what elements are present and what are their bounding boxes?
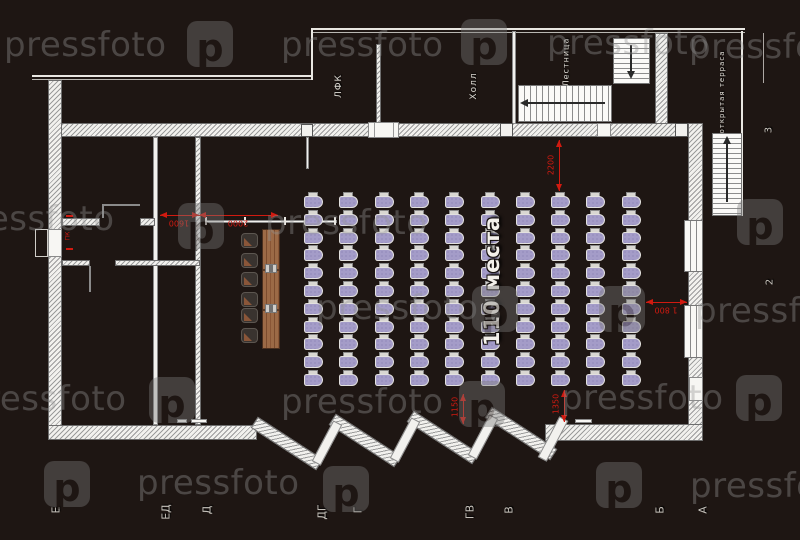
watermark-logo-glyph: p <box>53 469 80 507</box>
watermark-text: pressfoto <box>281 25 444 65</box>
watermark-layer: pressfotoppressfotoppressfotopressfotopr… <box>0 0 800 540</box>
watermark-logo-icon: p <box>459 381 505 427</box>
watermark-text: pressfoto <box>561 378 724 418</box>
watermark-logo-icon: p <box>736 375 782 421</box>
watermark-logo-glyph: p <box>481 294 508 332</box>
watermark-logo-glyph: p <box>332 474 359 512</box>
watermark-logo-glyph: p <box>745 383 772 421</box>
watermark-logo-glyph: p <box>158 385 185 423</box>
watermark-logo-glyph: p <box>746 207 773 245</box>
watermark-logo-glyph: p <box>187 211 214 249</box>
watermark-logo-icon: p <box>737 199 783 245</box>
watermark-text: pressfoto <box>0 199 115 239</box>
watermark-logo-icon: p <box>44 461 90 507</box>
watermark-logo-icon: p <box>461 19 507 65</box>
floor-plan: ЛФКХоллЛестницаоткрытая терраса110 места… <box>0 0 800 540</box>
watermark-logo-icon: p <box>149 377 195 423</box>
watermark-logo-glyph: p <box>468 389 495 427</box>
watermark-logo-icon: p <box>178 203 224 249</box>
watermark-text: pressfoto <box>690 466 800 506</box>
watermark-text: pressfoto <box>695 291 800 331</box>
watermark-text: pressfoto <box>281 382 444 422</box>
watermark-logo-icon: p <box>323 466 369 512</box>
watermark-text: pressfoto <box>0 379 127 419</box>
watermark-logo-glyph: p <box>608 294 635 332</box>
watermark-text: pressfoto <box>265 203 428 243</box>
watermark-logo-icon: p <box>599 286 645 332</box>
watermark-text: pressfoto <box>4 25 167 65</box>
watermark-logo-glyph: p <box>605 470 632 508</box>
watermark-text: pressfoto <box>547 23 710 63</box>
watermark-text: pressfoto <box>689 27 800 67</box>
watermark-logo-glyph: p <box>196 29 223 67</box>
watermark-text: pressfoto <box>316 288 479 328</box>
watermark-logo-icon: p <box>596 462 642 508</box>
watermark-logo-icon: p <box>187 21 233 67</box>
watermark-logo-icon: p <box>472 286 518 332</box>
watermark-logo-glyph: p <box>470 27 497 65</box>
watermark-text: pressfoto <box>137 463 300 503</box>
